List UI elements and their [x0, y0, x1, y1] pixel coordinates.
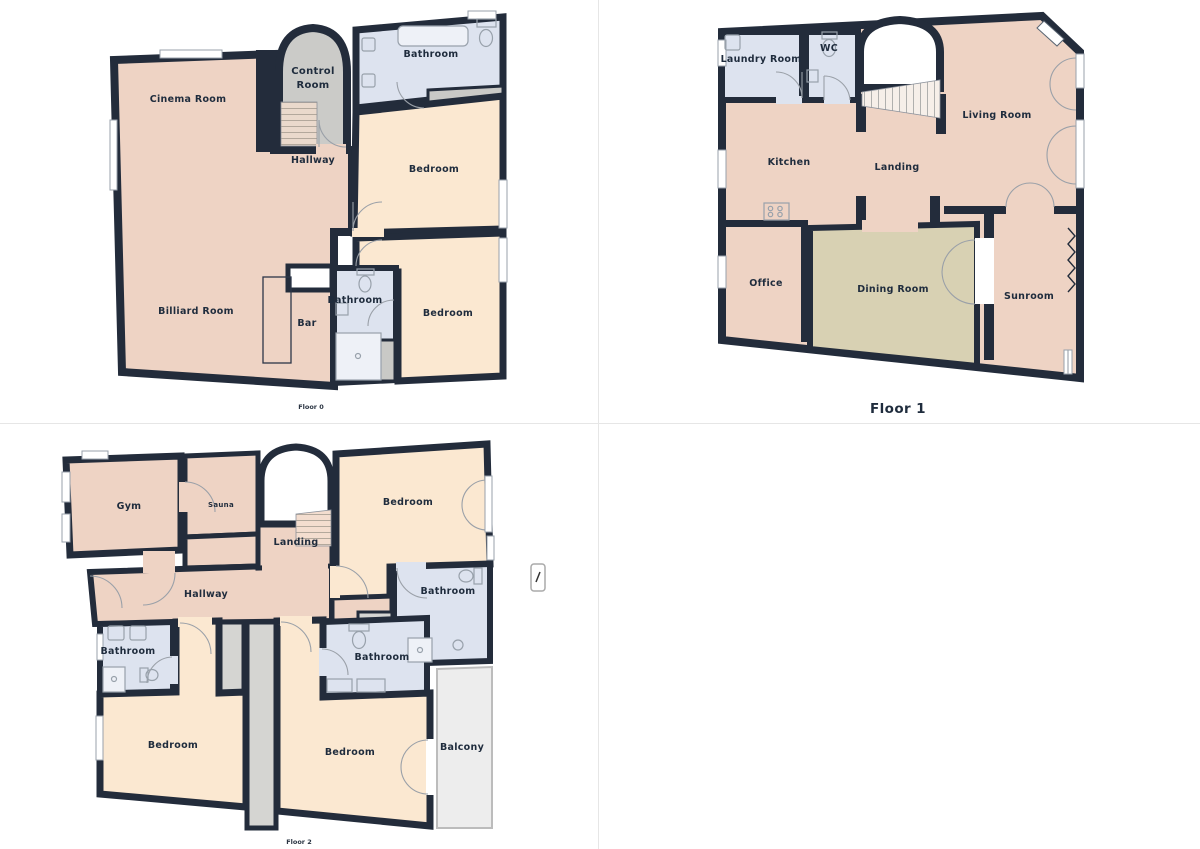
room-label-laundry-room: Laundry Room: [721, 54, 802, 65]
floorplan-canvas: Cinema Room Control Room Bathroom Bedroo…: [0, 0, 1200, 849]
floor-0-plan: Cinema Room Control Room Bathroom Bedroo…: [0, 0, 598, 423]
room-label-bathroom-top: Bathroom: [404, 49, 459, 60]
room-label-gym: Gym: [117, 501, 142, 512]
room-label-wc: WC: [820, 43, 838, 54]
room-label-bar: Bar: [297, 318, 316, 329]
floor-1-rooms: [722, 16, 1080, 378]
room-sauna: [185, 453, 258, 537]
room-label-bedroom-bottom-mid: Bedroom: [325, 747, 375, 758]
floor-1-plan: Laundry Room WC Living Room Kitchen Land…: [598, 0, 1200, 423]
shaft: [247, 622, 276, 828]
room-label-sunroom: Sunroom: [1004, 291, 1054, 302]
bathtub-icon: [398, 26, 468, 46]
room-label-balcony: Balcony: [440, 742, 485, 753]
room-label-bathroom-mid: Bathroom: [355, 652, 410, 663]
room-label-office: Office: [749, 278, 782, 289]
shower-icon: [103, 667, 125, 692]
room-label-landing: Landing: [875, 162, 920, 173]
floor-0-caption: Floor 0: [298, 403, 324, 411]
room-label-kitchen: Kitchen: [768, 157, 811, 168]
room-label-control-room-2: Room: [296, 80, 329, 91]
stair-arch: [860, 20, 940, 88]
floor-2-caption: Floor 2: [286, 838, 312, 846]
room-label-hallway: Hallway: [291, 155, 336, 166]
room-label-bathroom-small: Bathroom: [328, 295, 383, 306]
room-label-landing: Landing: [274, 537, 319, 548]
room-label-bedroom-1: Bedroom: [409, 164, 459, 175]
void-notch: [288, 266, 332, 290]
room-label-bedroom-2: Bedroom: [423, 308, 473, 319]
room-label-sauna: Sauna: [208, 501, 234, 509]
room-label-control-room-1: Control: [291, 66, 334, 77]
room-connector: [185, 534, 258, 568]
room-label-hallway: Hallway: [184, 589, 229, 600]
shaft: [219, 622, 244, 693]
room-label-billiard-room: Billiard Room: [158, 306, 234, 317]
room-label-bedroom-top: Bedroom: [383, 497, 433, 508]
stairs: [281, 102, 317, 146]
floor-2-plan: Gym Sauna Landing Bedroom Hallway Bathro…: [0, 424, 598, 849]
room-label-bathroom-right: Bathroom: [421, 586, 476, 597]
room-laundry: [722, 32, 802, 100]
shower-icon: [336, 333, 381, 380]
room-label-dining-room: Dining Room: [857, 284, 929, 295]
shower-icon: [408, 638, 432, 662]
room-label-bathroom-left: Bathroom: [101, 646, 156, 657]
room-label-cinema-room: Cinema Room: [150, 94, 227, 105]
floor-1-caption: Floor 1: [870, 401, 926, 417]
room-label-bedroom-bottom-left: Bedroom: [148, 740, 198, 751]
room-label-living-room: Living Room: [962, 110, 1031, 121]
window-marker-icon: [531, 564, 545, 591]
